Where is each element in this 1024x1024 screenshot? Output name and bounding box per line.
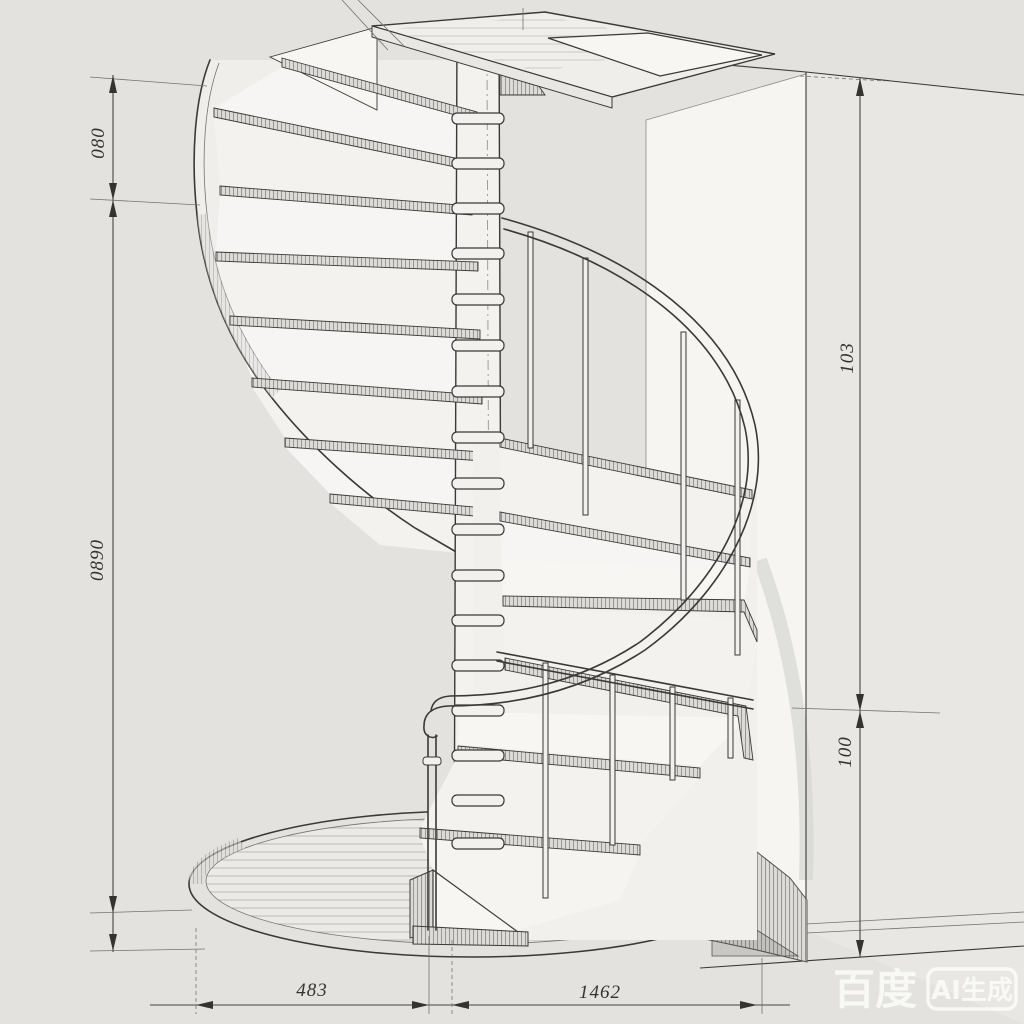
collar <box>452 795 504 806</box>
collar <box>452 478 504 489</box>
collar <box>452 248 504 259</box>
baluster <box>681 332 686 600</box>
collar <box>452 524 504 535</box>
technical-drawing: 080 0890 103 100 483 1462 百度 AI生成 <box>0 0 1024 1024</box>
collar <box>452 660 504 671</box>
dimension-label-right-upper: 103 <box>837 342 858 374</box>
collar <box>452 615 504 626</box>
dimension-label-left-bottom: 0890 <box>87 539 108 581</box>
baluster <box>528 232 533 448</box>
collar <box>452 386 504 397</box>
collar <box>452 705 504 716</box>
collar <box>452 203 504 214</box>
collar <box>452 294 504 305</box>
collar <box>452 570 504 581</box>
newel-collar <box>423 757 441 765</box>
dimension-label-bottom-left: 483 <box>296 980 328 1001</box>
baluster <box>670 687 675 780</box>
collar <box>452 113 504 124</box>
baluster <box>583 258 588 515</box>
watermark-badge-label: AI生成 <box>931 976 1013 1006</box>
right-wall <box>806 72 1024 1024</box>
baluster <box>735 400 740 655</box>
baluster <box>543 663 548 898</box>
dimension-label-right-lower: 100 <box>835 736 856 768</box>
collar <box>452 158 504 169</box>
watermark-brand: 百度 <box>833 965 917 1014</box>
dimension-label-left-top: 080 <box>88 127 109 159</box>
collar <box>452 838 504 849</box>
collar <box>452 340 504 351</box>
collar <box>452 750 504 761</box>
baluster <box>728 698 733 758</box>
baluster <box>610 675 615 845</box>
drawing-canvas: 080 0890 103 100 483 1462 百度 AI生成 <box>0 0 1024 1024</box>
collar <box>452 432 504 443</box>
dimension-label-bottom-right: 1462 <box>579 982 621 1003</box>
